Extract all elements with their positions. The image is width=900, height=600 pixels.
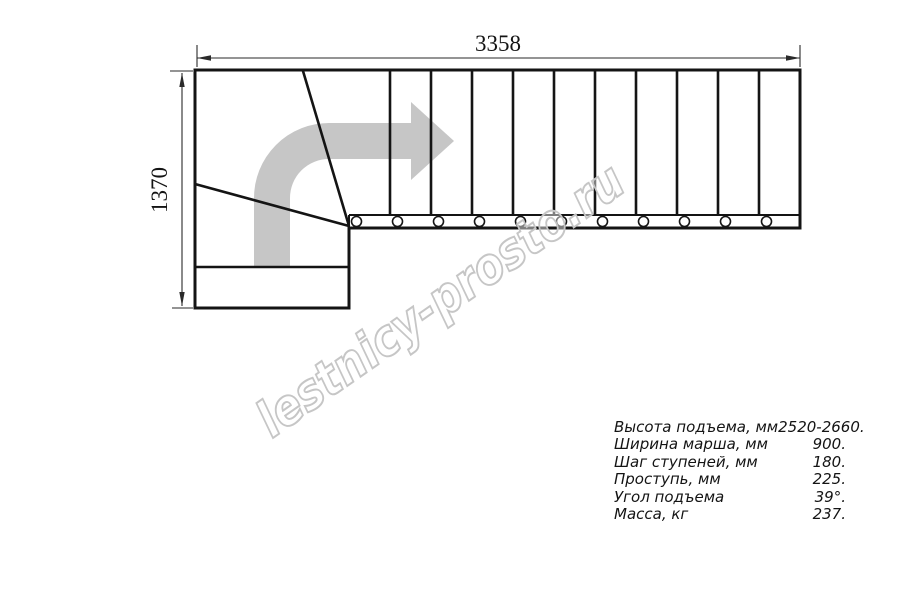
specs-table: Высота подъема, мм 2520-2660. Ширина мар… bbox=[614, 419, 846, 523]
spec-value: 237. bbox=[813, 506, 846, 523]
dim-arrow-down bbox=[179, 292, 184, 306]
spec-row: Высота подъема, мм 2520-2660. bbox=[614, 419, 846, 436]
drawing-canvas: 3358 1370 lestnicy-prosto.ru Высота подъ… bbox=[0, 0, 900, 600]
spec-value: 39°. bbox=[815, 489, 846, 506]
dim-arrow-up bbox=[179, 73, 184, 87]
spec-label: Проступь, мм bbox=[614, 471, 721, 488]
baluster-mark bbox=[393, 217, 403, 227]
direction-arrow-head bbox=[411, 102, 454, 180]
depth-dimension-label: 1370 bbox=[147, 167, 172, 213]
width-dimension-label: 3358 bbox=[475, 31, 521, 56]
spec-value: 900. bbox=[813, 436, 846, 453]
baluster-mark bbox=[475, 217, 485, 227]
spec-value: 225. bbox=[813, 471, 846, 488]
spec-row: Шаг ступеней, мм 180. bbox=[614, 454, 846, 471]
spec-label: Шаг ступеней, мм bbox=[614, 454, 758, 471]
spec-row: Проступь, мм 225. bbox=[614, 471, 846, 488]
baluster-mark bbox=[721, 217, 731, 227]
spec-label: Ширина марша, мм bbox=[614, 436, 768, 453]
spec-row: Масса, кг 237. bbox=[614, 506, 846, 523]
spec-label: Угол подъема bbox=[614, 489, 724, 506]
spec-label: Масса, кг bbox=[614, 506, 688, 523]
baluster-mark bbox=[680, 217, 690, 227]
baluster-mark bbox=[762, 217, 772, 227]
dim-arrow-right bbox=[786, 55, 800, 60]
baluster-mark bbox=[639, 217, 649, 227]
spec-value: 2520-2660. bbox=[778, 419, 865, 436]
spec-row: Угол подъема 39°. bbox=[614, 489, 846, 506]
baluster-mark bbox=[434, 217, 444, 227]
spec-row: Ширина марша, мм 900. bbox=[614, 436, 846, 453]
spec-label: Высота подъема, мм bbox=[614, 419, 778, 436]
direction-arrow bbox=[272, 102, 454, 267]
watermark-text: lestnicy-prosto.ru bbox=[245, 152, 635, 449]
dim-arrow-left bbox=[197, 55, 211, 60]
baluster-mark bbox=[352, 217, 362, 227]
spec-value: 180. bbox=[813, 454, 846, 471]
